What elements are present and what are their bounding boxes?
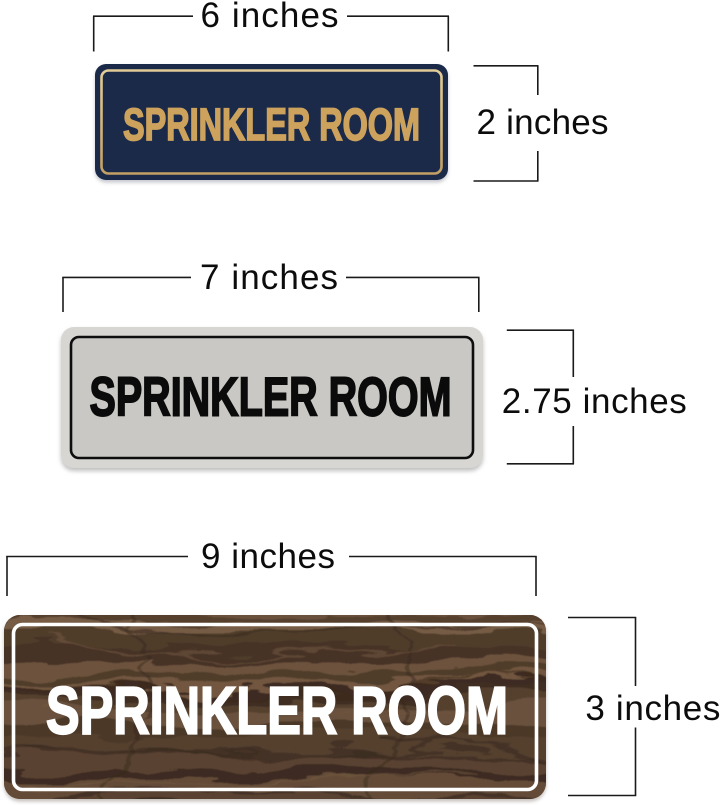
svg-text:6 inches: 6 inches [201, 0, 339, 35]
svg-text:2.75 inches: 2.75 inches [502, 382, 687, 421]
svg-text:SPRINKLER ROOM: SPRINKLER ROOM [90, 366, 452, 428]
svg-text:3 inches: 3 inches [585, 689, 720, 728]
svg-text:7 inches: 7 inches [200, 258, 338, 297]
svg-text:SPRINKLER ROOM: SPRINKLER ROOM [123, 99, 420, 150]
svg-text:2 inches: 2 inches [477, 103, 609, 142]
svg-text:9 inches: 9 inches [201, 537, 335, 576]
svg-text:SPRINKLER ROOM: SPRINKLER ROOM [46, 674, 508, 749]
